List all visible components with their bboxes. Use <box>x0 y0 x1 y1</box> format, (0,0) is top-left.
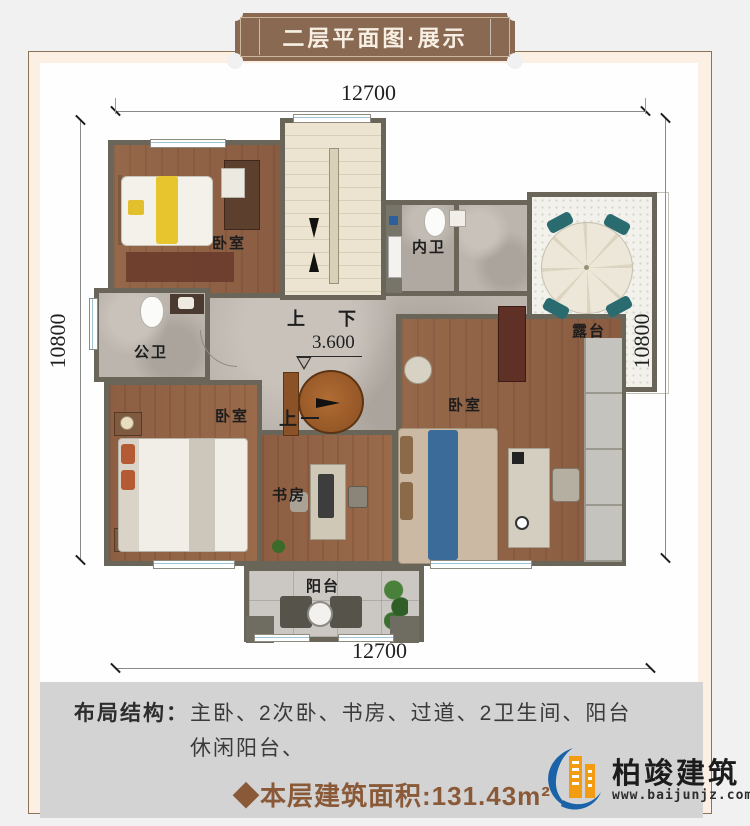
spiral-stair-arrow-icon <box>316 398 340 408</box>
dimension-ext <box>645 98 646 114</box>
dimension-line-top <box>115 111 646 112</box>
logo-name: 柏竣建筑 <box>612 750 740 792</box>
window <box>153 560 235 569</box>
desk-items <box>318 474 334 518</box>
pillow <box>400 482 413 520</box>
plant-icon <box>272 540 285 553</box>
dimension-top: 12700 <box>341 80 396 106</box>
desk-items <box>512 452 524 464</box>
room-label-bedroom-r: 卧室 <box>448 394 482 415</box>
room-label-study: 书房 <box>272 484 306 505</box>
window <box>430 560 532 569</box>
pillow <box>128 200 144 215</box>
chair-icon <box>552 468 580 502</box>
pillow <box>121 444 135 464</box>
room-label-terrace: 露台 <box>572 320 606 341</box>
umbrella-center <box>584 265 589 270</box>
window <box>89 298 98 350</box>
stair-label-up: 上 <box>287 305 307 331</box>
sink-icon <box>178 297 194 309</box>
stair-arrow-icon <box>309 252 319 272</box>
window <box>150 139 226 148</box>
desk-items <box>515 516 529 530</box>
balcony-chair <box>330 596 362 628</box>
sink-icon <box>449 210 466 227</box>
side-table <box>221 168 245 198</box>
dimension-bottom: 12700 <box>352 638 407 664</box>
stair-arrow-icon <box>309 218 319 238</box>
bed-blue-runner <box>428 430 458 560</box>
bed-yellow-throw <box>156 176 178 244</box>
stair-label-down: 下 <box>338 305 358 331</box>
bed-icon <box>118 438 248 552</box>
room-label-bedroom-bl: 卧室 <box>215 405 249 426</box>
logo-url: www.baijunjz.com <box>612 788 750 803</box>
page-title: 二层平面图·展示 <box>235 13 515 61</box>
dimension-ext <box>115 98 116 114</box>
stair-label-line <box>301 417 319 419</box>
dimension-left: 10800 <box>45 291 71 391</box>
dimension-line-right <box>665 118 666 558</box>
toilet-icon <box>140 296 164 328</box>
baijun-logo-icon <box>543 744 607 812</box>
room-label-balcony: 阳台 <box>306 575 340 596</box>
pillow <box>400 436 413 474</box>
lamp-icon <box>120 416 134 430</box>
page: { "header": { "badge": "二层平面图·展示" }, "di… <box>0 0 750 826</box>
rug <box>126 252 234 282</box>
chair-icon <box>348 486 368 508</box>
small-table-icon <box>404 356 432 384</box>
layout-line1: 主卧、2次卧、书房、过道、2卫生间、阳台 <box>190 697 631 727</box>
dimension-right: 10800 <box>629 291 655 391</box>
room-label-bedroom-tl: 卧室 <box>212 232 246 253</box>
layout-line2: 休闲阳台、 <box>190 732 305 762</box>
stair-rail <box>329 148 339 284</box>
floor-area-text: ◆本层建筑面积:131.43m² <box>233 776 551 813</box>
title-badge: 二层平面图·展示 <box>235 13 515 61</box>
balcony-railing-window <box>254 634 310 642</box>
elevation-value: 3.600 <box>312 332 355 354</box>
toilet-icon <box>424 207 446 237</box>
washbasin <box>388 236 402 278</box>
layout-label: 布局结构： <box>74 697 189 727</box>
pillow <box>121 470 135 490</box>
room-label-inner-bath: 内卫 <box>412 236 446 257</box>
dimension-line-left <box>80 120 81 560</box>
closet <box>584 338 622 562</box>
stair-label-up2: 上 <box>279 405 299 431</box>
room-label-public-bath: 公卫 <box>134 341 168 362</box>
balcony-table-icon <box>307 601 333 627</box>
wardrobe <box>498 306 526 382</box>
dimension-line-bottom <box>115 668 651 669</box>
control-panel <box>389 216 398 225</box>
window <box>293 114 371 123</box>
